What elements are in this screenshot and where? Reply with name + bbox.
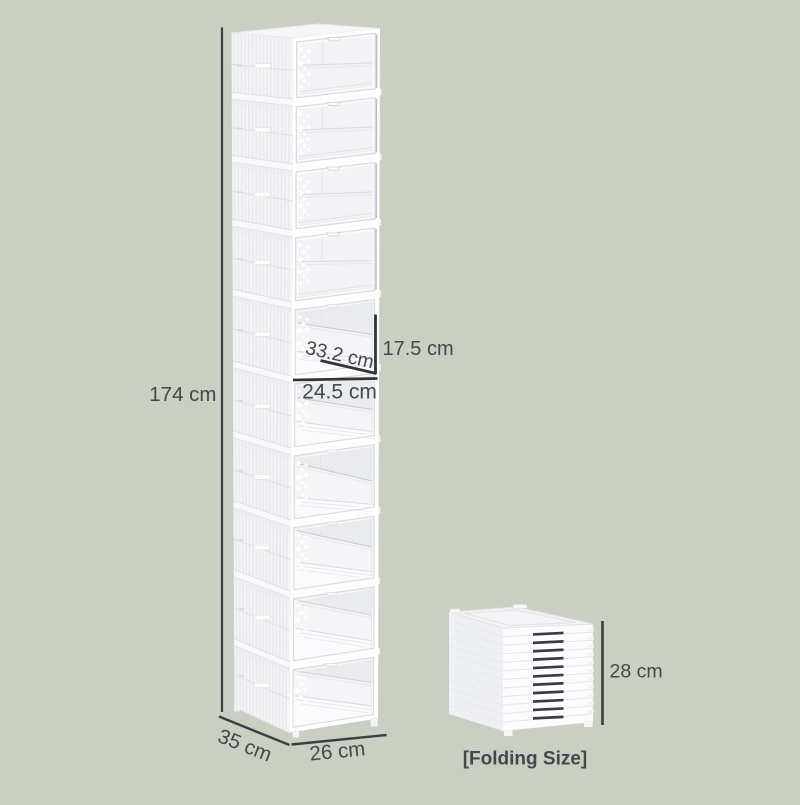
svg-text:[Folding Size]: [Folding Size]: [463, 749, 588, 770]
svg-text:24.5 cm: 24.5 cm: [302, 381, 377, 404]
svg-text:28 cm: 28 cm: [610, 661, 663, 683]
svg-text:17.5 cm: 17.5 cm: [383, 338, 454, 360]
svg-text:174 cm: 174 cm: [149, 383, 216, 406]
